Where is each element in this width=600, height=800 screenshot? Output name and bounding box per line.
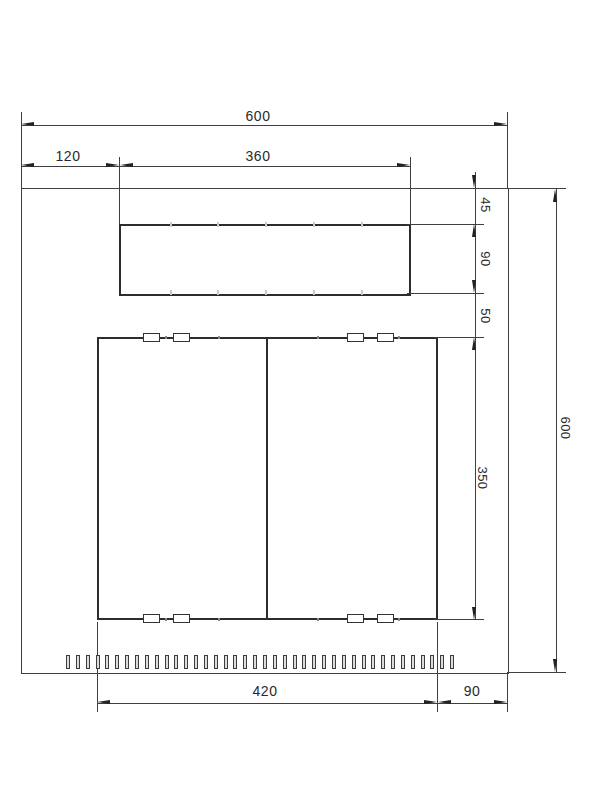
ext-line-90-right [507, 674, 508, 712]
vent-slot [135, 655, 139, 669]
ext-line-360-right [410, 157, 411, 224]
door-edge-tick [165, 336, 167, 339]
arrow-600top-right [494, 122, 507, 126]
vent-slot [401, 655, 405, 669]
arrow-90b-right [494, 700, 507, 704]
panel-edge-tick [217, 290, 219, 295]
ext-line-right-top [507, 112, 508, 188]
arrow-45-top [472, 175, 476, 188]
dim-label-total-width: 600 [246, 109, 271, 123]
vent-slot [174, 655, 178, 669]
vent-slot [362, 655, 366, 669]
dim-label-top-panel-width: 360 [246, 149, 271, 163]
dim-label-total-height: 600 [559, 416, 572, 439]
ext-line-350-bottom [434, 619, 484, 620]
panel-edge-tick [361, 290, 363, 295]
arrow-600top-left [21, 122, 34, 126]
door-clip [143, 614, 160, 623]
door-edge-tick [165, 618, 167, 621]
vent-slot [115, 655, 119, 669]
vent-slot [155, 655, 159, 669]
door-clip [173, 614, 190, 623]
dim-label-middle-gap: 50 [479, 308, 492, 323]
vent-slot [332, 655, 336, 669]
ext-line-420-right [437, 622, 438, 712]
technical-drawing-canvas: 600 120 360 45 90 50 350 600 420 90 [0, 0, 600, 800]
arrow-360-left [120, 163, 133, 167]
arrow-90-bottom [472, 280, 476, 293]
dim-line-120-360 [21, 166, 410, 167]
vent-slot [204, 655, 208, 669]
door-clip [377, 614, 394, 623]
door-edge-tick [218, 336, 220, 339]
arrow-420-left [97, 700, 110, 704]
arrow-90-top [472, 224, 476, 237]
vent-slot [293, 655, 297, 669]
vent-slot [233, 655, 237, 669]
vent-slot [214, 655, 218, 669]
vent-slot [302, 655, 306, 669]
ext-line-600r-bottom [507, 672, 566, 673]
arrow-350-top [472, 337, 476, 350]
panel-edge-tick [361, 222, 363, 227]
vent-slot [224, 655, 228, 669]
vent-slot [440, 655, 444, 669]
vent-slot [342, 655, 346, 669]
panel-edge-tick [265, 222, 267, 227]
ext-line-90-50 [407, 293, 484, 294]
vent-slot [322, 655, 326, 669]
dim-label-doors-width: 420 [253, 684, 278, 698]
vent-slot [243, 655, 247, 669]
dim-line-right-chain [475, 172, 476, 620]
top-panel-rect [119, 224, 411, 296]
arrow-350-bottom [472, 607, 476, 620]
vent-slot [283, 655, 287, 669]
vent-slot [105, 655, 109, 669]
vent-slot [66, 655, 70, 669]
arrow-360-right [397, 163, 410, 167]
door-edge-tick [398, 336, 400, 339]
vent-slot [371, 655, 375, 669]
vent-slot [391, 655, 395, 669]
panel-edge-tick [217, 222, 219, 227]
vent-slot [352, 655, 356, 669]
arrow-120-left [21, 163, 34, 167]
vent-slot [194, 655, 198, 669]
door-clip [173, 333, 190, 342]
vent-slot [253, 655, 257, 669]
vent-slot [76, 655, 80, 669]
vent-slot [165, 655, 169, 669]
door-edge-tick [317, 336, 319, 339]
panel-edge-tick [313, 222, 315, 227]
arrow-90b-left [438, 700, 451, 704]
arrow-600r-top [553, 189, 557, 202]
vent-slot [125, 655, 129, 669]
dim-label-top-margin: 45 [479, 197, 492, 212]
dim-line-600-top [21, 125, 507, 126]
vent-slot [96, 655, 100, 669]
arrow-600r-bottom [553, 659, 557, 672]
door-clip [377, 333, 394, 342]
vent-slot [430, 655, 434, 669]
vent-slot [86, 655, 90, 669]
door-edge-tick [317, 618, 319, 621]
door-clip [347, 614, 364, 623]
vent-slot [421, 655, 425, 669]
arrow-420-right [424, 700, 437, 704]
vent-slot [273, 655, 277, 669]
vent-slot [145, 655, 149, 669]
vent-slot [312, 655, 316, 669]
ext-line-350-top [434, 337, 484, 338]
arrow-120-right [106, 163, 119, 167]
panel-edge-tick [170, 222, 172, 227]
vent-slot [381, 655, 385, 669]
vent-slot [184, 655, 188, 669]
door-divider-line [266, 339, 268, 618]
door-clip [347, 333, 364, 342]
vent-slot [411, 655, 415, 669]
door-edge-tick [218, 618, 220, 621]
vent-slot [450, 655, 454, 669]
panel-edge-tick [313, 290, 315, 295]
door-edge-tick [398, 618, 400, 621]
dim-label-right-margin: 90 [464, 684, 481, 698]
dim-label-left-offset: 120 [56, 149, 81, 163]
dim-label-top-panel-height: 90 [479, 251, 492, 266]
panel-edge-tick [170, 290, 172, 295]
panel-edge-tick [265, 290, 267, 295]
door-clip [143, 333, 160, 342]
dim-label-door-height: 350 [476, 466, 489, 489]
vent-slot [263, 655, 267, 669]
